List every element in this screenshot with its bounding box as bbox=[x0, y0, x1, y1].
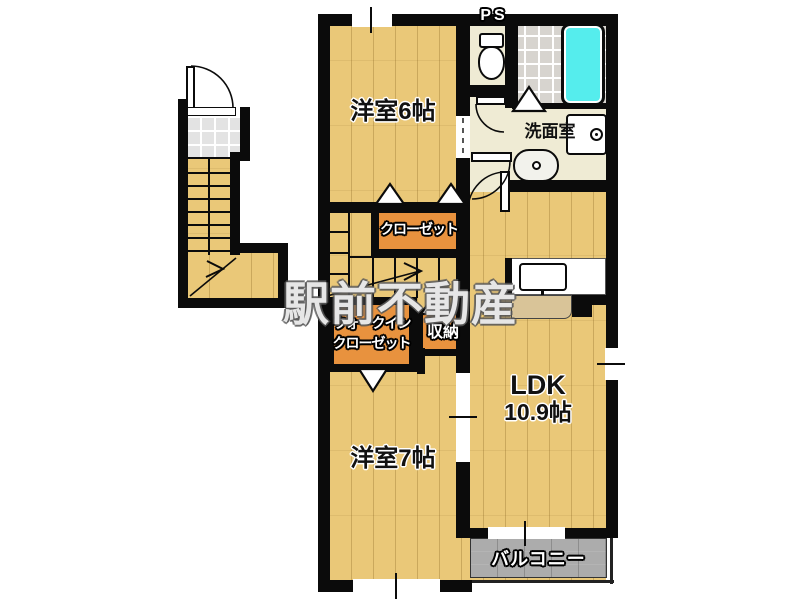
toilet-door-leaf bbox=[476, 96, 506, 105]
label-bedroom6: 洋室6帖 bbox=[330, 94, 456, 122]
entrance-door-arc bbox=[191, 66, 233, 108]
label-balcony: バルコニー bbox=[470, 538, 607, 578]
washroom-door-leaf bbox=[471, 152, 512, 162]
watermark-text: 駅前不動産 bbox=[283, 268, 543, 320]
kitchen-return-bar bbox=[572, 295, 608, 305]
stair-tread bbox=[330, 252, 348, 254]
annex-wall-left bbox=[178, 99, 188, 308]
entrance-threshold bbox=[185, 107, 236, 116]
toilet-bowl bbox=[478, 46, 505, 80]
bathtub bbox=[561, 23, 605, 106]
label-wic-line2: クローゼット bbox=[333, 335, 411, 351]
window-bedroom6-top bbox=[352, 13, 392, 27]
balcony-rail-right bbox=[610, 536, 613, 584]
storage-wall-stub bbox=[417, 348, 425, 374]
wall-right bbox=[606, 14, 618, 538]
washbasin-drain bbox=[532, 161, 541, 170]
wall-toilet-bath bbox=[505, 14, 518, 108]
label-ldk: LDK 10.9帖 bbox=[470, 372, 606, 428]
kitchen-return-bar-2 bbox=[572, 305, 592, 317]
label-ldk-line2: 10.9帖 bbox=[504, 399, 572, 425]
annex-wall-bottom bbox=[178, 298, 288, 308]
window-tick bbox=[597, 363, 625, 365]
label-washroom: 洗面室 bbox=[498, 118, 602, 140]
label-pipe-space: PS bbox=[468, 4, 520, 28]
annex-wall-right-mid bbox=[230, 158, 240, 255]
wall-bath-washroom bbox=[512, 103, 606, 109]
ldk-door-leaf bbox=[500, 171, 510, 212]
window-tick bbox=[370, 7, 372, 33]
door-gap-bedroom6 bbox=[456, 116, 470, 158]
annex-stair-divider bbox=[208, 158, 210, 255]
wall-washroom-ldk bbox=[505, 180, 618, 192]
annex-landing-floor bbox=[230, 253, 278, 298]
label-closet: クローゼット bbox=[375, 217, 463, 241]
balcony-rail-bottom bbox=[464, 580, 614, 583]
label-bedroom7: 洋室7帖 bbox=[330, 441, 456, 469]
wall-bedroom6-bottom bbox=[318, 202, 470, 213]
floor-plan-canvas: PS 洋室6帖 洗面室 クローゼット ウォークイン クローゼット 収納 LDK … bbox=[0, 0, 800, 600]
window-tick bbox=[395, 573, 397, 599]
stair-tread bbox=[330, 231, 348, 233]
label-ldk-line1: LDK bbox=[510, 370, 566, 400]
